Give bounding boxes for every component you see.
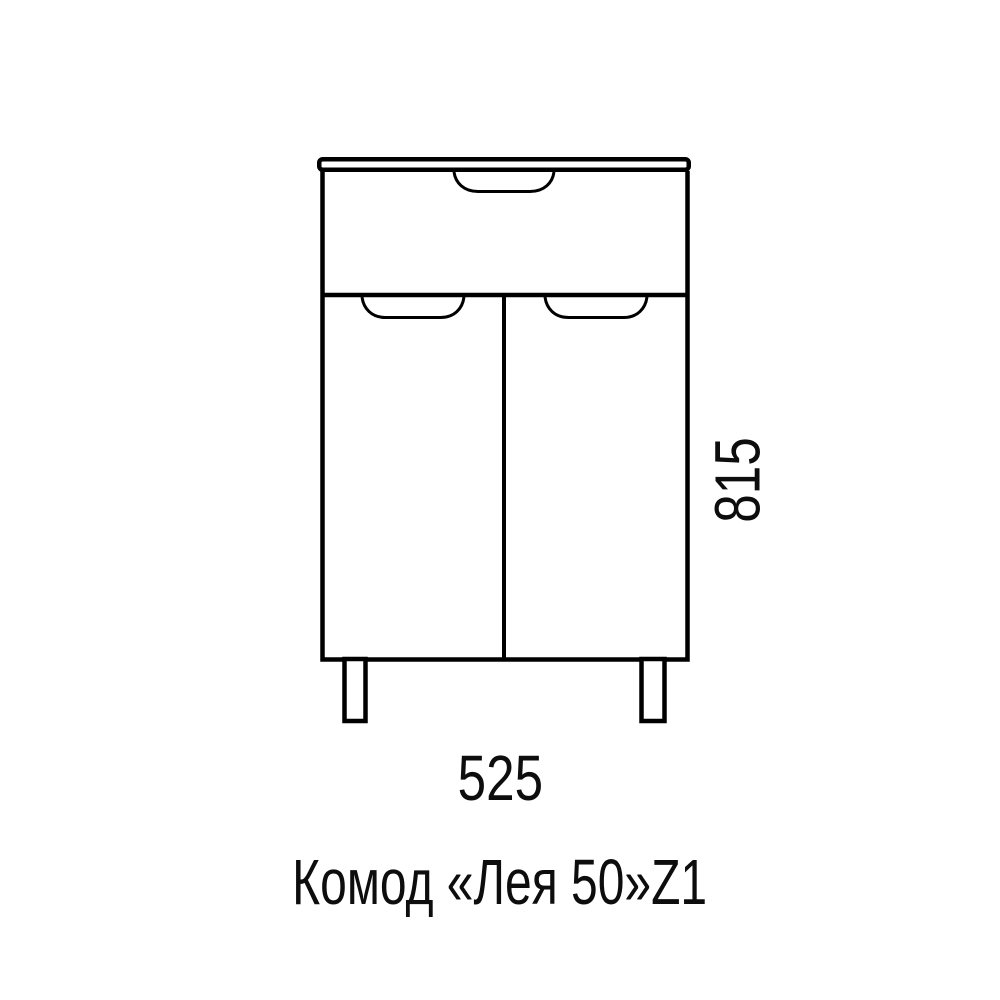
width-dimension: 525 — [0, 741, 1000, 815]
countertop — [319, 159, 689, 170]
diagram-canvas: 815 525 Комод «Лея 50»Z1 — [0, 0, 1000, 1000]
diagram-title: Комод «Лея 50»Z1 — [293, 845, 708, 919]
height-dimension: 815 — [695, 424, 779, 536]
height-dimension-label: 815 — [700, 437, 774, 522]
left-leg — [345, 659, 366, 721]
caption: Комод «Лея 50»Z1 — [0, 845, 1000, 919]
width-dimension-label: 525 — [457, 741, 542, 815]
right-leg — [642, 659, 665, 721]
